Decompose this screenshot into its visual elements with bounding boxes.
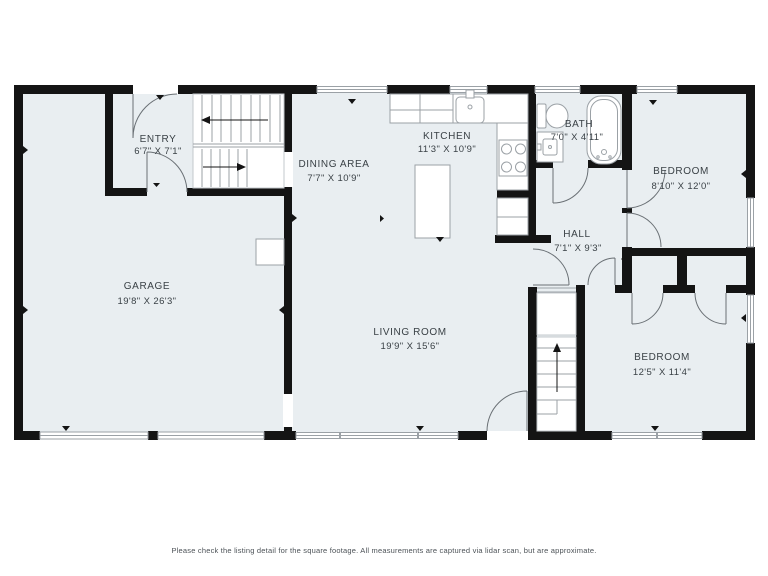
refrigerator	[497, 198, 528, 235]
garage-door-right	[158, 432, 264, 439]
window-bedroom1-right	[748, 198, 754, 247]
entry-stairs	[193, 94, 284, 188]
window-bedroom1-top	[637, 87, 677, 93]
entry-exterior-door-opening	[133, 85, 178, 94]
bedroom1-dim: 8'10" X 12'0"	[652, 181, 711, 192]
entry-dim: 6'7" X 7'1"	[134, 146, 182, 157]
dining-name: DINING AREA	[298, 159, 369, 170]
footer-note: Please check the listing detail for the …	[0, 546, 768, 555]
bathtub	[587, 96, 621, 164]
front-door-opening	[487, 431, 528, 440]
window-bedroom2-right	[748, 295, 754, 343]
window-bath	[535, 87, 580, 93]
furnace	[256, 239, 284, 265]
hall-name: HALL	[563, 229, 590, 240]
garage-name: GARAGE	[124, 281, 170, 292]
bedroom2-name: BEDROOM	[634, 352, 690, 363]
floor-area	[18, 89, 751, 436]
hall-closet	[537, 293, 576, 335]
bedroom1-name: BEDROOM	[653, 166, 709, 177]
kitchen-dim: 11'3" X 10'9"	[418, 144, 476, 155]
window-dining	[317, 87, 387, 93]
garage-dim: 19'8" X 26'3"	[118, 296, 177, 307]
toilet	[537, 104, 568, 128]
dining-dim: 7'7" X 10'9"	[307, 173, 360, 184]
bath-name: BATH	[565, 119, 593, 130]
floor-plan-canvas: ENTRY 6'7" X 7'1" GARAGE 19'8" X 26'3" D…	[0, 0, 768, 576]
entry-name: ENTRY	[140, 134, 177, 145]
living-dim: 19'9" X 15'6"	[381, 341, 440, 352]
basement-stairs	[537, 293, 576, 431]
bedroom2-dim: 12'5" X 11'4"	[633, 367, 691, 378]
window-bedroom2-bottom	[612, 432, 702, 439]
room-label-entry: ENTRY 6'7" X 7'1"	[134, 134, 182, 157]
stove	[499, 140, 527, 176]
kitchen-name: KITCHEN	[423, 131, 471, 142]
garage-living-opening	[283, 394, 293, 427]
hall-dim: 7'1" X 9'3"	[554, 243, 602, 254]
kitchen-island	[415, 165, 450, 238]
living-name: LIVING ROOM	[373, 327, 446, 338]
garage-door-left	[40, 432, 148, 439]
window-living	[296, 432, 458, 439]
bath-dim: 7'0" X 4'11"	[551, 132, 604, 143]
